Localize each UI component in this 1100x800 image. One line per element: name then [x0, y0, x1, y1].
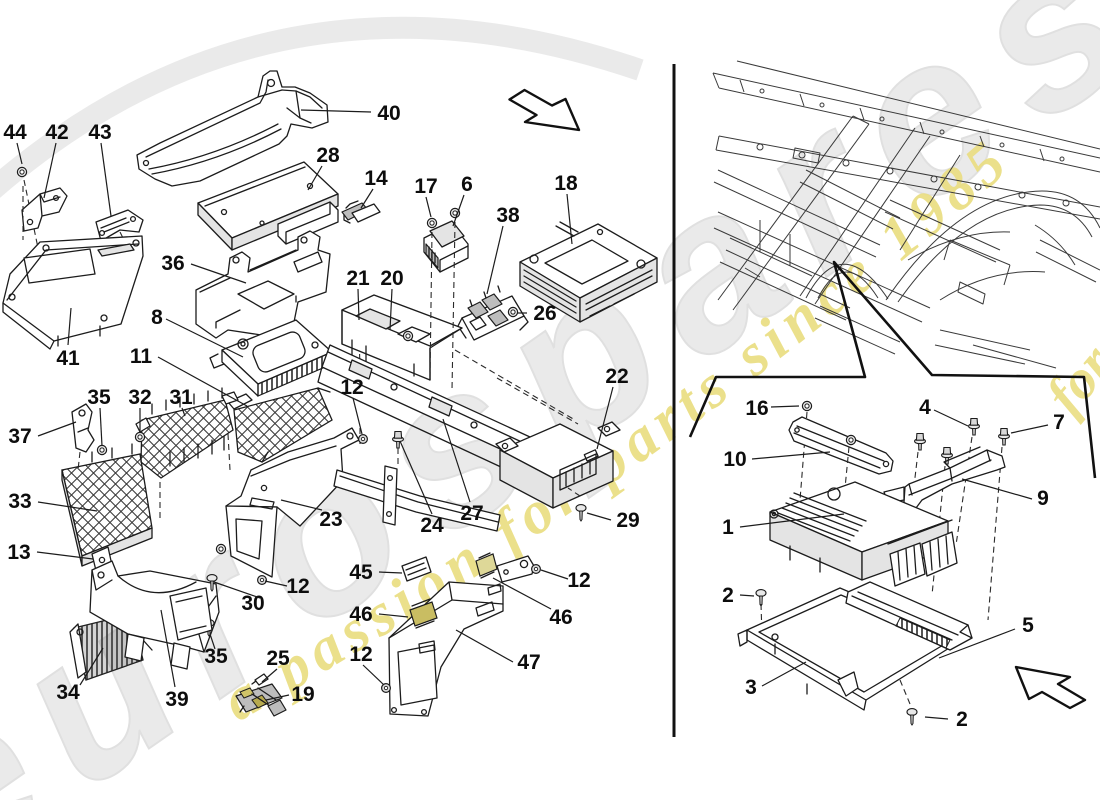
svg-text:18: 18	[554, 172, 578, 195]
svg-text:9: 9	[1037, 487, 1049, 510]
svg-text:20: 20	[380, 267, 403, 290]
svg-text:31: 31	[169, 386, 193, 409]
svg-text:38: 38	[496, 204, 520, 227]
svg-text:45: 45	[349, 561, 373, 584]
svg-text:7: 7	[1053, 411, 1065, 434]
svg-text:40: 40	[377, 102, 400, 125]
svg-text:12: 12	[349, 643, 372, 666]
svg-text:for pa: for pa	[1034, 280, 1100, 426]
svg-text:42: 42	[45, 121, 68, 144]
svg-text:43: 43	[88, 121, 111, 144]
svg-text:21: 21	[346, 267, 370, 290]
svg-text:13: 13	[7, 541, 30, 564]
svg-text:39: 39	[165, 688, 188, 711]
svg-text:36: 36	[161, 252, 184, 275]
svg-text:11: 11	[130, 345, 153, 368]
svg-text:12: 12	[286, 575, 309, 598]
svg-text:19: 19	[291, 683, 314, 706]
svg-text:41: 41	[56, 347, 80, 370]
svg-text:46: 46	[349, 603, 372, 626]
svg-text:32: 32	[128, 386, 151, 409]
svg-text:37: 37	[8, 425, 31, 448]
svg-text:12: 12	[340, 376, 363, 399]
svg-text:10: 10	[723, 448, 746, 471]
svg-text:22: 22	[605, 365, 628, 388]
svg-text:6: 6	[461, 173, 473, 196]
svg-text:35: 35	[204, 645, 228, 668]
svg-text:24: 24	[420, 514, 444, 537]
svg-text:47: 47	[517, 651, 540, 674]
svg-text:14: 14	[364, 167, 388, 190]
svg-text:8: 8	[151, 306, 163, 329]
svg-text:12: 12	[567, 569, 590, 592]
svg-text:5: 5	[1022, 614, 1034, 637]
svg-text:25: 25	[266, 647, 290, 670]
svg-text:17: 17	[414, 175, 437, 198]
svg-text:2: 2	[956, 708, 968, 731]
svg-text:35: 35	[87, 386, 111, 409]
svg-text:34: 34	[56, 681, 80, 704]
svg-text:46: 46	[549, 606, 572, 629]
svg-text:4: 4	[919, 396, 931, 419]
svg-text:44: 44	[3, 121, 27, 144]
svg-text:16: 16	[745, 397, 768, 420]
svg-text:3: 3	[745, 676, 757, 699]
svg-text:28: 28	[316, 144, 340, 167]
svg-text:26: 26	[533, 302, 556, 325]
svg-text:2: 2	[722, 584, 734, 607]
svg-text:29: 29	[616, 509, 639, 532]
svg-text:23: 23	[319, 508, 342, 531]
svg-text:27: 27	[460, 502, 483, 525]
svg-text:1: 1	[722, 516, 734, 539]
svg-text:33: 33	[8, 490, 31, 513]
